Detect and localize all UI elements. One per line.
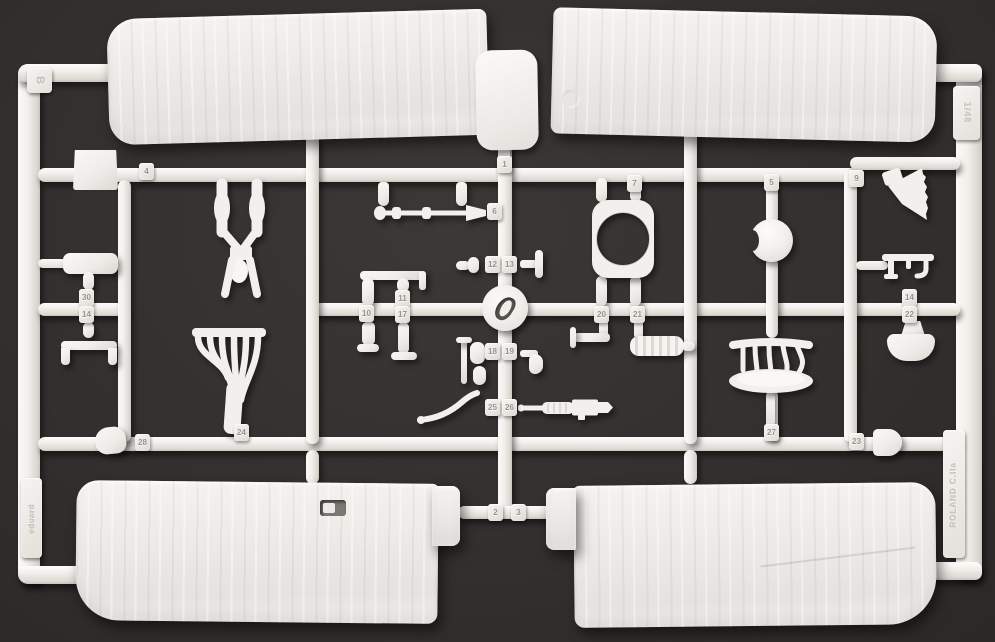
fairing-blob-part [94, 425, 128, 455]
arm-19-blob [529, 354, 543, 374]
stabilizer-part [63, 253, 118, 274]
control-rod-part [372, 196, 492, 228]
u-bracket-leg-l [61, 348, 70, 365]
mount-bracket-part [882, 249, 936, 283]
wing-slot-detail [320, 500, 346, 516]
t-arm-post [535, 250, 543, 278]
strut-top-hook [419, 271, 426, 290]
radiator-block-part [73, 150, 118, 190]
t-bar-top [456, 337, 472, 343]
mold-stamp [562, 90, 580, 108]
cabane-strut-assembly [210, 176, 272, 304]
upper-wing-left-half [106, 9, 489, 146]
t-bar-post [461, 340, 467, 384]
cylinder-19 [473, 366, 486, 385]
runner-v1 [118, 180, 131, 442]
scale-label: 1/48 [962, 102, 972, 124]
cylinder-18 [470, 342, 485, 364]
kit-label: ROLAND C.IIa [950, 461, 959, 526]
runner-v2 [306, 128, 319, 444]
sprue-photo: B 1/48 ROLAND C.IIa eduard [0, 0, 995, 642]
strut-17-lower [398, 322, 409, 354]
strut-bit-a [83, 272, 94, 290]
strut-bit-b [83, 322, 94, 338]
runner-h1 [38, 168, 858, 182]
runner-v5 [844, 170, 857, 442]
lower-wing-right [573, 482, 936, 628]
gate-right-wing [684, 450, 697, 484]
gate-left-wing [306, 450, 319, 484]
brand-label: eduard [27, 503, 36, 533]
lower-wing-left [75, 480, 438, 624]
runner-h2-left [38, 303, 128, 316]
brand-tag: eduard [21, 478, 42, 558]
runner-v4-b [766, 258, 778, 338]
strut-11-upper [397, 278, 409, 292]
strut-10-lower [362, 322, 375, 346]
wing-center-section [475, 49, 539, 150]
scale-tag: 1/48 [953, 86, 980, 140]
curved-blade-part [416, 390, 480, 426]
runner-v4-a [766, 184, 778, 224]
headrest-part [873, 429, 902, 456]
pump-tip [682, 341, 695, 351]
machine-gun-part [518, 394, 614, 422]
l-pipe-tend [570, 327, 576, 348]
frame-bottom-left-bar [18, 566, 84, 584]
spinner-notch [746, 230, 759, 251]
cushion-part [887, 334, 935, 361]
cowling-ring-part [590, 196, 656, 282]
bolt-part-body [468, 257, 479, 273]
strut-17-foot [391, 352, 417, 360]
gate-bottom-wings [458, 506, 552, 519]
disc-part [482, 285, 528, 331]
intake-horn-part [882, 164, 932, 228]
lower-wing-left-root [432, 486, 460, 546]
stub-seat-down [766, 394, 775, 426]
l-pipe-bar [574, 333, 610, 342]
sprue-letter: B [33, 76, 45, 85]
sprue-letter-tag: B [27, 68, 52, 93]
pilot-seat-part [727, 334, 815, 396]
strut-10-foot [357, 344, 379, 352]
strut-10-upper [362, 278, 374, 306]
pump-cylinder [630, 336, 684, 356]
disc-notch [492, 294, 519, 324]
runner-v3 [684, 128, 697, 444]
lower-wing-right-root [546, 488, 576, 550]
wing-slot-tab [323, 503, 335, 513]
exhaust-manifold-part [188, 326, 270, 440]
kit-name-tag: ROLAND C.IIa [943, 430, 965, 558]
u-bracket-leg-r [108, 348, 117, 365]
upper-wing-right-half [551, 7, 938, 142]
